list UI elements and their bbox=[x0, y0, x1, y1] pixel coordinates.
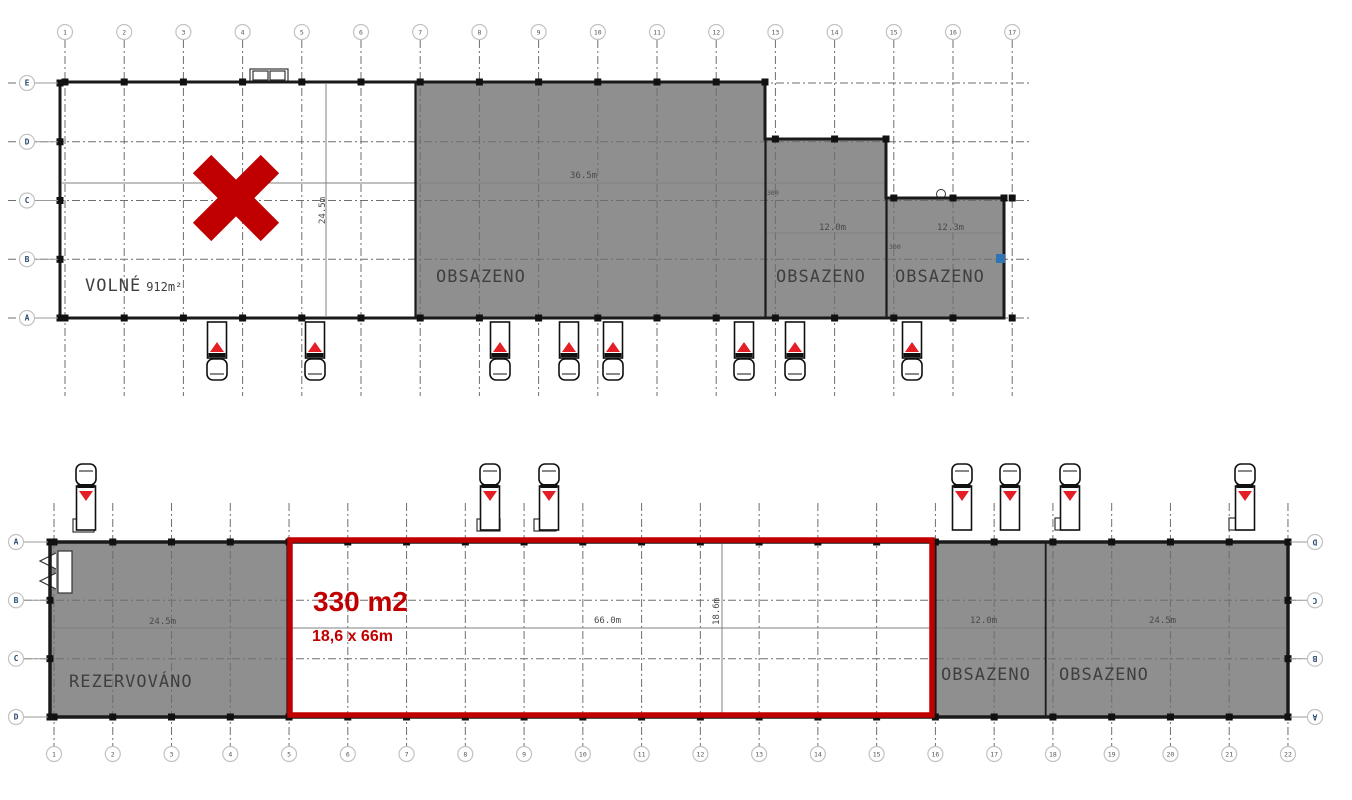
door-icon bbox=[1229, 518, 1250, 530]
svg-text:3: 3 bbox=[181, 29, 185, 37]
door-icon bbox=[73, 519, 94, 532]
grid-column-bubble: 21 bbox=[1222, 747, 1237, 762]
grid-column-bubble: 16 bbox=[946, 25, 961, 40]
svg-text:19: 19 bbox=[1108, 751, 1116, 759]
grid-row-bubble: D bbox=[20, 134, 35, 149]
svg-text:10: 10 bbox=[579, 751, 587, 759]
grid-row-bubble: B bbox=[9, 593, 24, 608]
svg-text:C: C bbox=[14, 654, 19, 663]
grid-row-bubble: D bbox=[9, 710, 24, 725]
svg-text:B: B bbox=[25, 255, 30, 264]
grid-column-bubble: 5 bbox=[282, 747, 297, 762]
svg-text:1: 1 bbox=[63, 29, 67, 37]
unit-top-obsazeno-main[interactable] bbox=[415, 83, 765, 317]
grid-column-bubble: 6 bbox=[340, 747, 355, 762]
column-marker bbox=[638, 714, 645, 721]
svg-text:C: C bbox=[1312, 596, 1317, 605]
grid-column-bubble: 4 bbox=[235, 25, 250, 40]
grid-column-bubble: 13 bbox=[752, 747, 767, 762]
truck-icon bbox=[1060, 464, 1080, 530]
column-marker bbox=[344, 714, 351, 721]
svg-text:A: A bbox=[14, 538, 19, 547]
grid-column-bubble: 8 bbox=[472, 25, 487, 40]
svg-text:21: 21 bbox=[1225, 751, 1233, 759]
door-icon bbox=[1055, 518, 1076, 530]
svg-text:7: 7 bbox=[405, 751, 409, 759]
grid-row-bubble: A bbox=[1308, 710, 1323, 725]
svg-text:12: 12 bbox=[696, 751, 704, 759]
truck-icon bbox=[76, 464, 96, 530]
svg-text:2: 2 bbox=[122, 29, 126, 37]
svg-text:17: 17 bbox=[1008, 29, 1016, 37]
truck-icon bbox=[1235, 464, 1255, 530]
truck-icon bbox=[480, 464, 500, 530]
column-marker bbox=[697, 714, 704, 721]
svg-text:B: B bbox=[1312, 654, 1317, 663]
svg-text:4: 4 bbox=[228, 751, 232, 759]
svg-text:10: 10 bbox=[594, 29, 602, 37]
truck-icon bbox=[734, 322, 754, 380]
grid-column-bubble: 14 bbox=[810, 747, 825, 762]
svg-text:9: 9 bbox=[537, 29, 541, 37]
grid-row-bubble: C bbox=[20, 193, 35, 208]
grid-row-bubble: A bbox=[20, 311, 35, 326]
svg-text:3: 3 bbox=[170, 751, 174, 759]
grid-column-bubble: 10 bbox=[590, 25, 605, 40]
grid-column-bubble: 2 bbox=[105, 747, 120, 762]
svg-text:20: 20 bbox=[1167, 751, 1175, 759]
grid-column-bubble: 3 bbox=[176, 25, 191, 40]
unit-bottom-rezervovano[interactable] bbox=[51, 543, 287, 716]
svg-text:13: 13 bbox=[755, 751, 763, 759]
svg-text:16: 16 bbox=[931, 751, 939, 759]
grid-row-bubble: E bbox=[20, 76, 35, 91]
grid-row-bubble: B bbox=[20, 252, 35, 267]
svg-text:A: A bbox=[1312, 713, 1317, 722]
grid-column-bubble: 15 bbox=[886, 25, 901, 40]
grid-column-bubble: 7 bbox=[399, 747, 414, 762]
svg-text:9: 9 bbox=[522, 751, 526, 759]
svg-text:11: 11 bbox=[653, 29, 661, 37]
grid-column-bubble: 20 bbox=[1163, 747, 1178, 762]
unit-bottom-obsazeno-a[interactable] bbox=[936, 543, 1044, 716]
grid-column-bubble: 9 bbox=[517, 747, 532, 762]
grid-column-bubble: 1 bbox=[47, 747, 62, 762]
grid-column-bubble: 11 bbox=[634, 747, 649, 762]
svg-text:4: 4 bbox=[241, 29, 245, 37]
truck-icon bbox=[902, 322, 922, 380]
grid-column-bubble: 5 bbox=[294, 25, 309, 40]
svg-text:D: D bbox=[25, 137, 30, 146]
svg-text:1: 1 bbox=[52, 751, 56, 759]
truck-icon bbox=[952, 464, 972, 530]
grid-column-bubble: 2 bbox=[117, 25, 132, 40]
column-marker bbox=[521, 714, 528, 721]
unit-top-volne[interactable] bbox=[61, 83, 414, 317]
svg-text:13: 13 bbox=[771, 29, 779, 37]
grid-column-bubble: 15 bbox=[869, 747, 884, 762]
grid-column-bubble: 18 bbox=[1045, 747, 1060, 762]
column-marker bbox=[1009, 315, 1016, 322]
grid-column-bubble: 7 bbox=[413, 25, 428, 40]
svg-text:6: 6 bbox=[359, 29, 363, 37]
wall-detail-icon bbox=[937, 190, 946, 199]
svg-text:E: E bbox=[25, 79, 30, 88]
grid-column-bubble: 14 bbox=[827, 25, 842, 40]
column-marker bbox=[403, 714, 410, 721]
grid-column-bubble: 12 bbox=[709, 25, 724, 40]
truck-icon bbox=[490, 322, 510, 380]
grid-column-bubble: 4 bbox=[223, 747, 238, 762]
grid-column-bubble: 3 bbox=[164, 747, 179, 762]
grid-column-bubble: 9 bbox=[531, 25, 546, 40]
svg-text:2: 2 bbox=[111, 751, 115, 759]
svg-text:6: 6 bbox=[346, 751, 350, 759]
grid-column-bubble: 6 bbox=[354, 25, 369, 40]
grid-row-bubble: C bbox=[9, 651, 24, 666]
truck-icon bbox=[539, 464, 559, 530]
grid-row-bubble: D bbox=[1308, 535, 1323, 550]
truck-icon bbox=[785, 322, 805, 380]
grid-column-bubble: 1 bbox=[58, 25, 73, 40]
svg-text:5: 5 bbox=[287, 751, 291, 759]
svg-text:17: 17 bbox=[990, 751, 998, 759]
grid-column-bubble: 12 bbox=[693, 747, 708, 762]
svg-text:D: D bbox=[14, 713, 19, 722]
svg-text:14: 14 bbox=[814, 751, 822, 759]
truck-icon bbox=[1000, 464, 1020, 530]
grid-column-bubble: 13 bbox=[768, 25, 783, 40]
truck-icon bbox=[207, 322, 227, 380]
grid-column-bubble: 17 bbox=[987, 747, 1002, 762]
svg-text:8: 8 bbox=[463, 751, 467, 759]
column-marker bbox=[1009, 195, 1016, 202]
grid-row-bubble: A bbox=[9, 535, 24, 550]
svg-text:11: 11 bbox=[638, 751, 646, 759]
door-icon bbox=[270, 71, 285, 80]
svg-text:16: 16 bbox=[949, 29, 957, 37]
svg-text:12: 12 bbox=[712, 29, 720, 37]
column-marker bbox=[579, 714, 586, 721]
truck-icon bbox=[305, 322, 325, 380]
svg-text:8: 8 bbox=[477, 29, 481, 37]
grid-row-bubble: B bbox=[1308, 651, 1323, 666]
grid-column-bubble: 22 bbox=[1280, 747, 1295, 762]
door-icon bbox=[534, 519, 556, 531]
column-marker bbox=[462, 714, 469, 721]
floor-plan-canvas: 1234567891011121314151617EDCBA1234567891… bbox=[0, 0, 1352, 800]
column-marker bbox=[814, 714, 821, 721]
grid-column-bubble: 8 bbox=[458, 747, 473, 762]
truck-icon bbox=[603, 322, 623, 380]
svg-text:C: C bbox=[25, 196, 30, 205]
door-icon bbox=[250, 69, 288, 82]
svg-text:A: A bbox=[25, 314, 30, 323]
door-icon bbox=[253, 71, 268, 80]
column-marker bbox=[756, 714, 763, 721]
svg-text:15: 15 bbox=[890, 29, 898, 37]
svg-text:22: 22 bbox=[1284, 751, 1292, 759]
svg-text:14: 14 bbox=[831, 29, 839, 37]
door-icon bbox=[477, 519, 500, 531]
truck-icon bbox=[559, 322, 579, 380]
svg-text:15: 15 bbox=[873, 751, 881, 759]
svg-text:5: 5 bbox=[300, 29, 304, 37]
unit-bottom-obsazeno-b[interactable] bbox=[1046, 543, 1287, 716]
unit-bottom-offer-330m2[interactable] bbox=[293, 544, 929, 712]
column-marker bbox=[873, 714, 880, 721]
svg-text:18: 18 bbox=[1049, 751, 1057, 759]
grid-column-bubble: 11 bbox=[650, 25, 665, 40]
svg-text:B: B bbox=[14, 596, 19, 605]
grid-column-bubble: 10 bbox=[575, 747, 590, 762]
grid-row-bubble: C bbox=[1308, 593, 1323, 608]
grid-column-bubble: 19 bbox=[1104, 747, 1119, 762]
svg-text:D: D bbox=[1312, 538, 1317, 547]
unit-top-obsazeno-right[interactable] bbox=[887, 199, 1004, 317]
svg-text:7: 7 bbox=[418, 29, 422, 37]
grid-column-bubble: 17 bbox=[1005, 25, 1020, 40]
grid-column-bubble: 16 bbox=[928, 747, 943, 762]
unit-top-obsazeno-mid[interactable] bbox=[766, 140, 886, 317]
